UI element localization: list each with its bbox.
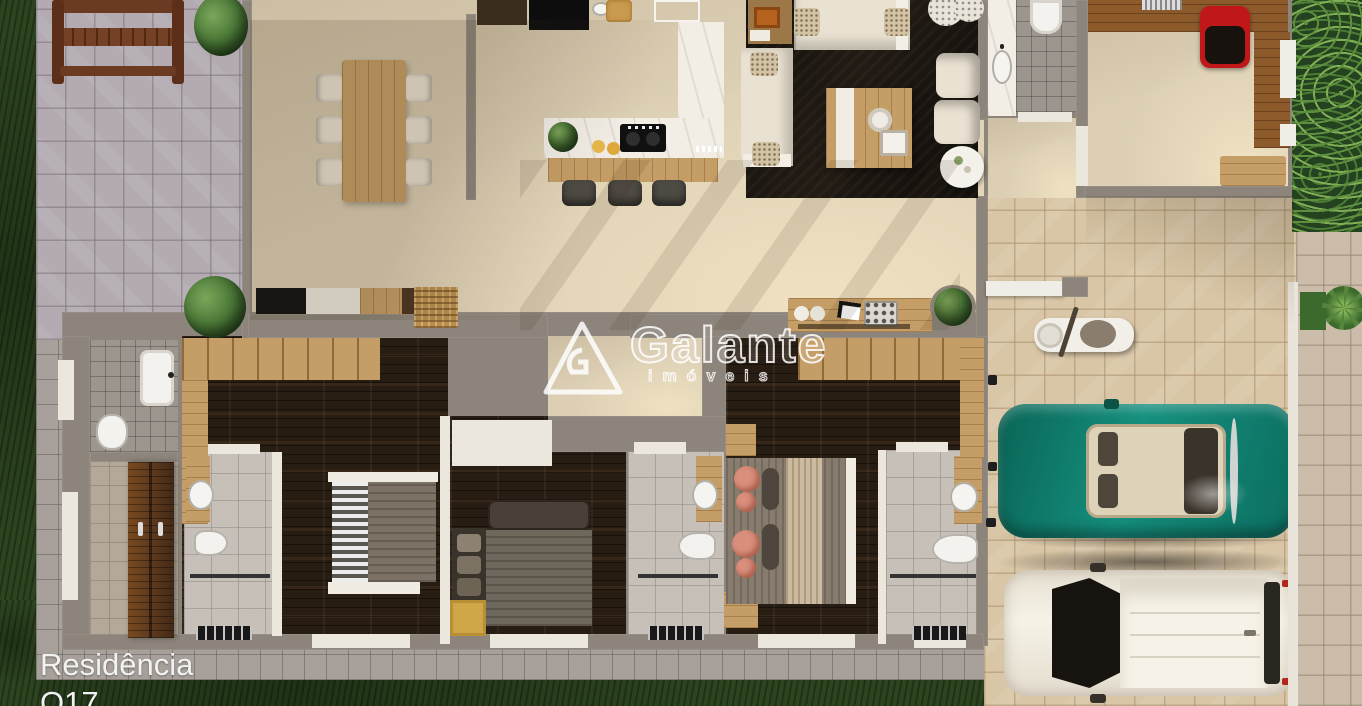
wardrobe-divider	[149, 462, 152, 638]
wing-bath-faucet	[1000, 44, 1004, 49]
bed1-frame-bottom	[328, 582, 420, 594]
wall-lavabo-closet	[90, 452, 178, 462]
bush-by-door	[184, 276, 246, 338]
armchair-1	[936, 53, 980, 98]
gate-wall-white	[986, 281, 1064, 296]
bedroom1-wardrobe-top	[182, 338, 380, 380]
decor-book	[750, 30, 770, 41]
threshold-bathroom3	[896, 442, 948, 452]
wing-door	[1076, 126, 1088, 186]
bedroom2-headboard-wall	[452, 420, 552, 466]
throw-pillow-1	[794, 8, 820, 36]
office-chair	[1200, 6, 1250, 68]
bed3-frame-foot	[846, 458, 856, 604]
bedroom2-rug	[450, 600, 486, 636]
bed1-frame-top	[328, 472, 438, 482]
patio-bench	[52, 0, 184, 86]
watermark: Galante imóveis	[540, 316, 870, 396]
window-left-2	[62, 492, 78, 600]
decor-box	[754, 7, 780, 28]
wing-bath-sink	[992, 50, 1012, 84]
window-left-1	[58, 360, 74, 420]
car-seat-2	[1098, 474, 1118, 508]
office-bench	[1220, 156, 1286, 186]
teal-car-highlight	[1178, 474, 1248, 514]
threshold-wing-bath	[1018, 112, 1072, 122]
nook-cushion-1	[457, 534, 481, 552]
salmon-pillow-3	[732, 530, 760, 558]
bedroom2-closet-nook	[452, 528, 486, 602]
suv-roof	[1120, 578, 1268, 688]
watermark-brand: Galante	[630, 316, 827, 374]
hall-to-wing	[988, 118, 1088, 198]
lavabo-vanity	[140, 350, 174, 406]
teal-car-mirror	[1104, 399, 1119, 409]
salmon-pillow-2	[736, 492, 756, 512]
wing-bathtub	[1030, 0, 1062, 34]
decor-bowl	[868, 108, 892, 132]
bench-back	[52, 0, 184, 13]
bolster-pillow-2	[762, 524, 779, 570]
car-seat-1	[1098, 432, 1118, 466]
bed2-duvet	[486, 530, 592, 626]
nook-cushion-2	[457, 556, 481, 574]
threshold-bathroom1	[208, 444, 260, 454]
wall-light-1	[988, 375, 997, 385]
bed1-striped-blanket	[332, 482, 368, 582]
bathroom2-sink	[692, 480, 718, 510]
watermark-subtitle: imóveis	[648, 368, 778, 386]
window-bottom-3	[758, 634, 855, 648]
suv-mirror-2	[1090, 694, 1106, 703]
bed3	[726, 458, 856, 604]
office-pillar-2	[1280, 124, 1296, 146]
caption-line2: Q17	[40, 684, 340, 706]
threshold-bathroom2	[634, 442, 686, 454]
bathroom3-toilet	[932, 534, 978, 564]
bathroom1-toilet	[194, 530, 228, 556]
master-wardrobe-right	[960, 338, 984, 458]
nook-cushion-3	[457, 578, 481, 596]
decor-tray	[880, 130, 908, 156]
wall-light-2	[988, 462, 997, 471]
wall-bathroom1-right	[272, 452, 282, 636]
table-runner	[836, 88, 854, 168]
floorplan-render: Galante imóveis Residência Q17	[0, 0, 1362, 706]
fridge-outline	[654, 0, 700, 22]
curb-white	[1288, 282, 1298, 706]
white-suv	[1004, 570, 1294, 696]
wardrobe-handle-2	[158, 522, 163, 536]
scooter-rear	[1037, 323, 1063, 348]
tree-shadow-2	[520, 160, 960, 330]
grass-corner	[0, 600, 40, 706]
suv-mirror-1	[1090, 563, 1106, 572]
driveway-shadow	[1086, 196, 1294, 326]
bed3-runner	[786, 458, 822, 604]
suv-windshield	[1052, 578, 1120, 688]
caption-line1: Residência	[40, 646, 340, 684]
bed1	[328, 472, 438, 594]
bathroom1-mat	[196, 626, 252, 640]
bathroom1-sink	[188, 480, 214, 510]
closet-wardrobe	[128, 462, 174, 638]
office-pillar-1	[1280, 40, 1296, 98]
bathroom3-mat	[912, 626, 966, 640]
suv-roof-line-1	[1130, 612, 1260, 614]
bathroom2-mat	[648, 626, 704, 640]
bathroom2-shower-bar	[638, 574, 718, 578]
wall-master-bathroom3	[878, 450, 886, 644]
office-keyboard	[1142, 0, 1182, 10]
bench-rail	[60, 66, 176, 76]
bed2-pillows	[488, 500, 590, 530]
galante-triangle-logo	[540, 320, 624, 398]
wall-right-mid	[976, 196, 988, 338]
side-table-glass	[964, 166, 971, 173]
wardrobe-handle-1	[138, 522, 143, 536]
bathroom2-toilet	[678, 532, 716, 560]
suv-roof-line-2	[1130, 634, 1260, 636]
suv-handle	[1244, 630, 1256, 636]
cutting-board	[606, 0, 632, 22]
bolster-pillow-1	[762, 468, 779, 510]
throw-pillow-3	[750, 52, 778, 76]
armchair-2	[934, 100, 980, 144]
office-desk-top	[1088, 0, 1288, 32]
plants-top-right	[1292, 0, 1362, 232]
bathroom1-shower-bar	[190, 574, 270, 578]
caption: Residência Q17	[40, 646, 340, 706]
teal-car	[998, 404, 1294, 538]
lavabo-faucet	[168, 372, 174, 378]
coffee-table	[826, 88, 912, 168]
lavabo-toilet	[96, 414, 128, 450]
salmon-pillow-1	[734, 466, 760, 492]
throw-pillow-2	[884, 8, 910, 36]
bathroom3-shower-bar	[890, 574, 976, 578]
office-chair-seat	[1205, 26, 1245, 64]
bench-seat	[62, 28, 174, 46]
suv-rear-window	[1264, 582, 1280, 684]
gate-wall-cap	[1062, 277, 1088, 297]
window-bottom-2	[490, 634, 588, 648]
bathroom3-sink	[950, 482, 978, 512]
bed2	[486, 498, 594, 628]
corner-side-table	[748, 0, 792, 44]
wall-bedroom2-left	[440, 416, 450, 644]
salmon-pillow-4	[736, 558, 756, 578]
bed1-duvet	[368, 482, 436, 582]
master-nightstand-1	[726, 424, 756, 456]
suv-roof-line-3	[1130, 656, 1260, 658]
palm-tree	[1322, 286, 1362, 330]
